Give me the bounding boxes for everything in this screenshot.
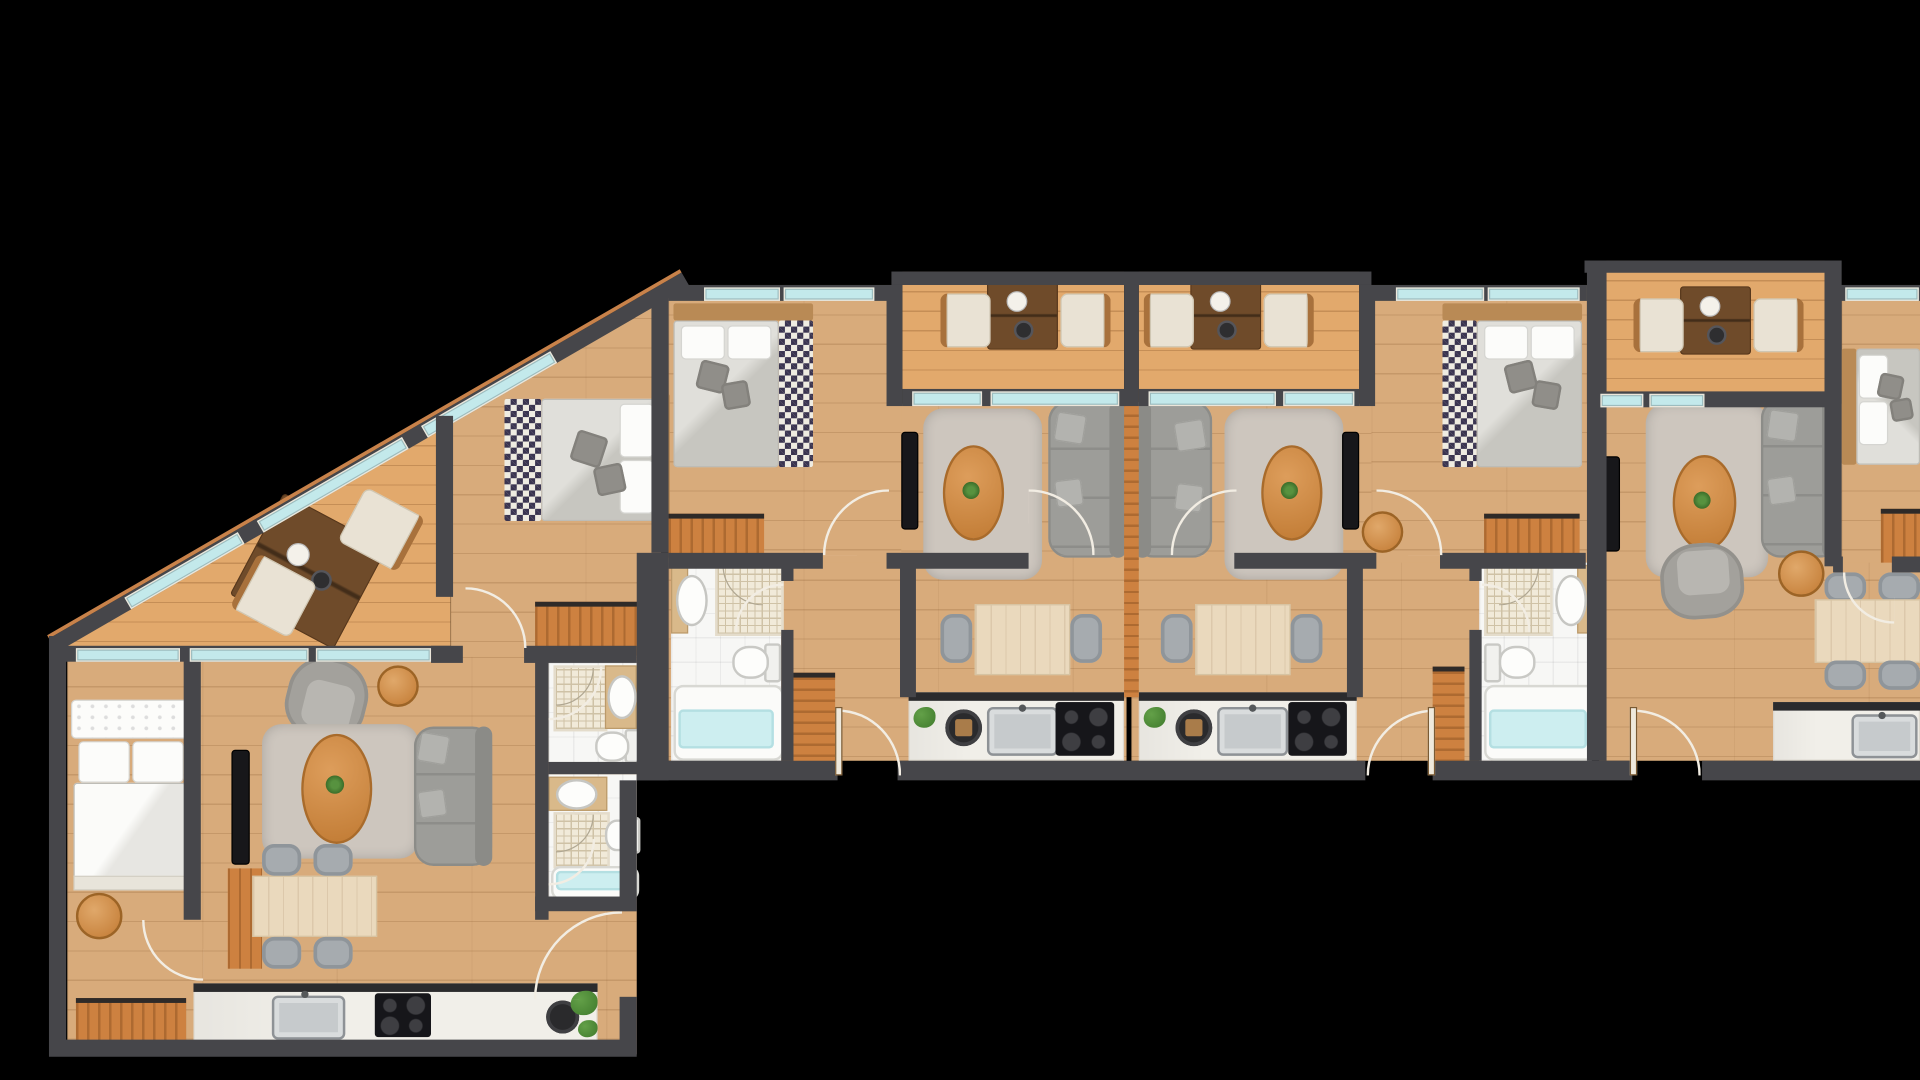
wall bbox=[637, 761, 838, 781]
cooktop bbox=[375, 993, 431, 1037]
desk-chair bbox=[1633, 298, 1683, 352]
table-plant bbox=[326, 775, 344, 793]
dining-chair bbox=[1291, 614, 1323, 663]
bed-cushion bbox=[1876, 372, 1905, 401]
cooktop bbox=[1288, 702, 1347, 756]
wall bbox=[1469, 630, 1481, 761]
wall bbox=[1825, 261, 1842, 567]
dresser bbox=[1484, 514, 1580, 558]
bed-cushion bbox=[720, 379, 751, 410]
cutting-board-inner bbox=[1185, 719, 1202, 736]
table-plant bbox=[1693, 492, 1710, 509]
table-plant bbox=[1281, 482, 1298, 499]
kettle bbox=[1014, 320, 1034, 340]
bed-pillow bbox=[132, 741, 183, 783]
bed-runner bbox=[779, 320, 813, 467]
bed-headboard bbox=[1442, 303, 1582, 320]
bed-runner bbox=[504, 399, 541, 521]
washbasin bbox=[676, 575, 708, 626]
kettle bbox=[1707, 325, 1727, 345]
window bbox=[1396, 287, 1484, 300]
desk-chair bbox=[1060, 294, 1110, 348]
floor-plan bbox=[0, 0, 1920, 1080]
bed-pillow bbox=[727, 325, 771, 359]
window bbox=[76, 648, 180, 661]
white-bed-duvet bbox=[73, 783, 186, 881]
white-bed-headboard bbox=[71, 700, 191, 739]
bed-pillow bbox=[620, 404, 654, 458]
washbasin bbox=[1555, 575, 1587, 626]
wall bbox=[781, 563, 793, 581]
window bbox=[1649, 394, 1704, 407]
window bbox=[991, 391, 1120, 406]
sofa-back bbox=[475, 727, 492, 866]
washbasin bbox=[556, 779, 598, 810]
sofa-pillow bbox=[1053, 411, 1087, 445]
wall bbox=[1124, 272, 1139, 407]
wall bbox=[49, 636, 66, 1054]
wall bbox=[1131, 272, 1371, 285]
dining-chair bbox=[1161, 614, 1193, 663]
teapot bbox=[1007, 291, 1028, 312]
bed-pillow bbox=[1859, 401, 1888, 445]
dining-chair bbox=[940, 614, 972, 663]
dining-table bbox=[252, 876, 377, 937]
cooktop bbox=[1056, 702, 1115, 756]
kitchen-sink bbox=[1217, 707, 1288, 756]
wardrobe bbox=[1881, 509, 1920, 563]
toilet bbox=[732, 646, 769, 679]
desk-chair bbox=[1144, 294, 1194, 348]
desk-chair bbox=[940, 294, 990, 348]
bed-pillow bbox=[1484, 325, 1528, 359]
wall bbox=[1469, 563, 1481, 581]
dresser bbox=[669, 514, 765, 558]
bed-headboard bbox=[1842, 349, 1857, 465]
wardrobe bbox=[793, 673, 835, 764]
wall bbox=[535, 660, 548, 919]
sofa-pillow bbox=[1173, 419, 1207, 453]
window bbox=[1488, 287, 1580, 300]
sofa-pillow bbox=[416, 732, 450, 766]
wall bbox=[49, 1040, 637, 1057]
kettle bbox=[1217, 320, 1237, 340]
wall bbox=[1833, 557, 1843, 573]
floor-plan-canvas bbox=[0, 0, 1920, 1080]
counter-edge bbox=[909, 692, 1125, 701]
wall bbox=[1587, 261, 1607, 761]
washbasin bbox=[607, 675, 636, 719]
side-table bbox=[377, 665, 419, 707]
dining-table bbox=[1195, 604, 1291, 675]
wall bbox=[1702, 761, 1920, 781]
faucet bbox=[1249, 705, 1256, 712]
bed-pillow bbox=[78, 741, 129, 783]
faucet bbox=[301, 991, 308, 998]
bed-headboard bbox=[673, 303, 813, 320]
window bbox=[1600, 394, 1643, 407]
armchair-seat bbox=[1676, 549, 1730, 597]
wall bbox=[549, 762, 637, 774]
window bbox=[1283, 391, 1354, 406]
dining-chair bbox=[1070, 614, 1102, 663]
kitchen-sink bbox=[987, 707, 1058, 756]
wall bbox=[651, 290, 668, 553]
window bbox=[704, 287, 780, 300]
bed-cushion bbox=[1531, 379, 1562, 410]
sofa-pillow bbox=[417, 788, 447, 818]
bed-cushion bbox=[592, 462, 627, 497]
dining-chair bbox=[1825, 660, 1867, 689]
desk-chair bbox=[1753, 298, 1803, 352]
plant bbox=[1144, 707, 1166, 728]
dining-chair bbox=[313, 937, 352, 969]
plant bbox=[578, 1020, 598, 1037]
counter-edge bbox=[1139, 692, 1357, 701]
cutting-board-inner bbox=[955, 719, 972, 736]
dining-table bbox=[975, 604, 1071, 675]
wall bbox=[887, 285, 903, 406]
wall bbox=[436, 416, 453, 597]
wall bbox=[669, 553, 823, 569]
bed-cushion bbox=[1889, 397, 1915, 423]
door-leaf bbox=[1428, 707, 1435, 775]
wall bbox=[781, 630, 793, 761]
wall bbox=[900, 565, 916, 697]
counter-edge bbox=[1773, 702, 1920, 711]
wall bbox=[431, 646, 463, 663]
kitchen-sink bbox=[272, 996, 345, 1040]
door-leaf bbox=[1630, 707, 1637, 775]
tv bbox=[1343, 433, 1358, 528]
bed-pillow bbox=[1531, 325, 1575, 359]
window bbox=[190, 648, 309, 661]
wall bbox=[184, 660, 201, 919]
wardrobe bbox=[1433, 667, 1465, 765]
dining-chair bbox=[262, 844, 301, 876]
faucet bbox=[1878, 712, 1885, 719]
table-plant bbox=[962, 482, 979, 499]
dining-chair bbox=[262, 937, 301, 969]
bed-pillow bbox=[681, 325, 725, 359]
bathtub-glass bbox=[678, 709, 774, 748]
teapot bbox=[1700, 296, 1721, 317]
faucet bbox=[1019, 705, 1026, 712]
wall bbox=[620, 997, 637, 1054]
bed-runner bbox=[1442, 320, 1476, 467]
tv bbox=[233, 751, 249, 864]
kitchen-sink bbox=[1851, 714, 1917, 758]
tv bbox=[902, 433, 917, 528]
wall bbox=[535, 897, 637, 912]
plant bbox=[913, 707, 935, 728]
wall bbox=[1433, 761, 1633, 781]
toilet bbox=[1499, 646, 1536, 679]
dining-chair bbox=[1878, 660, 1920, 689]
wall bbox=[891, 272, 1131, 285]
wall bbox=[898, 761, 1366, 781]
bed-footboard bbox=[73, 876, 188, 891]
sofa-pillow bbox=[1766, 475, 1796, 505]
bathtub-glass bbox=[1489, 709, 1587, 748]
sofa-pillow bbox=[1766, 409, 1799, 442]
dining-chair bbox=[313, 844, 352, 876]
side-table bbox=[1778, 550, 1825, 596]
desk-chair bbox=[1264, 294, 1314, 348]
window bbox=[1845, 287, 1918, 300]
window bbox=[912, 391, 982, 406]
door-leaf bbox=[835, 707, 842, 775]
wall bbox=[1585, 261, 1841, 273]
window bbox=[1149, 391, 1276, 406]
window bbox=[316, 648, 431, 661]
wall bbox=[1892, 557, 1920, 573]
wall bbox=[1359, 285, 1375, 406]
room-divider bbox=[1124, 404, 1139, 698]
ottoman bbox=[76, 893, 123, 939]
wall bbox=[1347, 565, 1363, 697]
wall bbox=[620, 780, 637, 911]
wall bbox=[1440, 553, 1586, 569]
wall bbox=[637, 553, 669, 780]
teapot bbox=[287, 543, 310, 566]
window bbox=[784, 287, 875, 300]
toilet bbox=[595, 731, 629, 762]
teapot bbox=[1210, 291, 1231, 312]
